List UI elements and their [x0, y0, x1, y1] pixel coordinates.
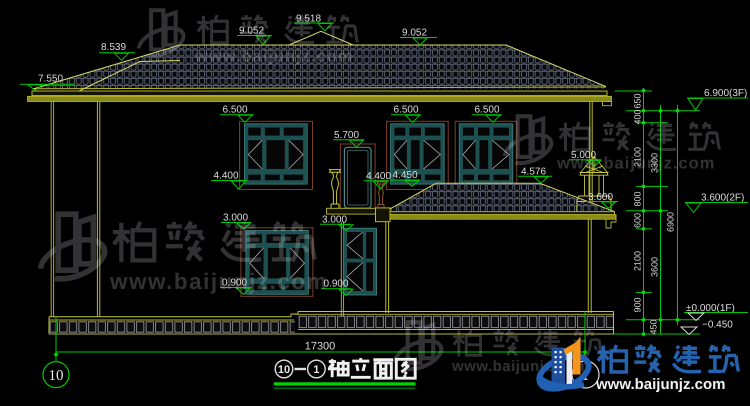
svg-text:9.052: 9.052 [402, 28, 427, 39]
svg-text:6.500: 6.500 [475, 105, 500, 116]
svg-text:650: 650 [633, 93, 643, 108]
svg-text:600: 600 [633, 213, 643, 228]
svg-text:8.539: 8.539 [101, 42, 126, 53]
svg-text:−0.450: −0.450 [702, 320, 733, 331]
svg-text:400: 400 [633, 109, 643, 124]
svg-text:10: 10 [49, 368, 64, 384]
svg-text:10: 10 [278, 364, 290, 376]
svg-text:6.500: 6.500 [223, 105, 248, 116]
svg-text:450: 450 [649, 319, 659, 334]
svg-text:6.500: 6.500 [394, 105, 419, 116]
svg-text:www.baijunjz.com: www.baijunjz.com [109, 269, 328, 294]
svg-text:4.450: 4.450 [393, 170, 418, 181]
svg-text:7.550: 7.550 [38, 74, 63, 85]
svg-text:4.400: 4.400 [214, 171, 239, 182]
svg-text:www.baijunjz.com: www.baijunjz.com [556, 155, 715, 173]
svg-text:17300: 17300 [305, 341, 336, 353]
svg-text:6.900(3F): 6.900(3F) [704, 88, 747, 99]
svg-text:www.baijunjz.com: www.baijunjz.com [595, 376, 725, 393]
svg-text:900: 900 [633, 297, 643, 312]
svg-text:www.baijunjz.com: www.baijunjz.com [194, 48, 353, 66]
svg-text:2100: 2100 [633, 251, 643, 271]
svg-text:800: 800 [633, 191, 643, 206]
svg-text:6900: 6900 [666, 212, 676, 232]
svg-text:3.600(2F): 3.600(2F) [701, 193, 744, 204]
svg-text:1: 1 [313, 364, 319, 376]
svg-text:3600: 3600 [650, 257, 660, 277]
